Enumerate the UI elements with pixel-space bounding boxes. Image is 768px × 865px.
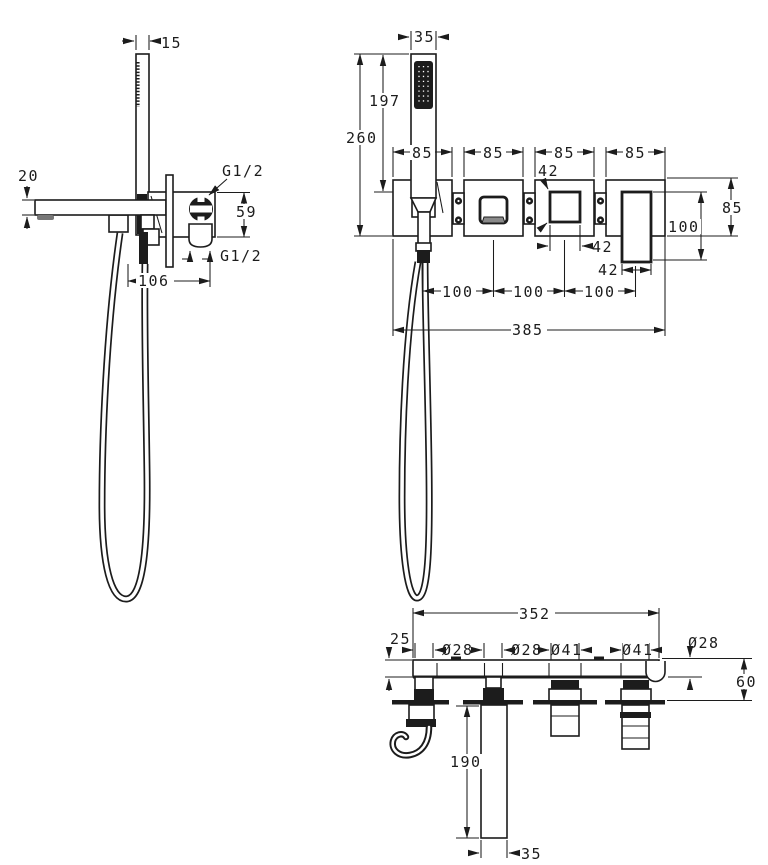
dim-knob-width: 42: [592, 238, 613, 256]
front-view: 35 197 260 85 85 85 85 42: [344, 28, 744, 598]
dim-pitch3: 100: [584, 283, 616, 301]
dim-spout-width: 35: [521, 845, 542, 863]
dim-pitch2: 100: [513, 283, 545, 301]
shower-hook: [409, 705, 434, 720]
dim-lever-height: 100: [668, 218, 700, 236]
technical-drawing-page: 15 20 G1/2 59 G1/2 106: [0, 0, 768, 865]
flange-2: [463, 700, 523, 705]
dim-overall-height: 260: [346, 129, 378, 147]
lever-handle: [622, 192, 651, 262]
dim-handset-width: 35: [414, 28, 435, 46]
dim-lever-width: 42: [598, 261, 619, 279]
spout-aerator: [37, 215, 54, 220]
dim-bottom-connection: G1/2: [220, 247, 262, 265]
bottom-view: 352 25 Ø28 Ø28 Ø41 Ø41: [385, 605, 758, 863]
hose-outlet: [109, 215, 128, 232]
dim-dia-valve1: Ø41: [551, 641, 583, 659]
dim-wall-distance: 60: [736, 673, 757, 691]
dim-pitch1: 100: [442, 283, 474, 301]
dim-handset-height: 197: [369, 92, 401, 110]
dim-plate1-width: 85: [412, 144, 433, 162]
holder-socket: [646, 661, 665, 682]
dim-plate4-width: 85: [625, 144, 646, 162]
dim-dia-valve2: Ø41: [622, 641, 654, 659]
dim-dia-socket: Ø28: [688, 634, 720, 652]
dim-knob-size: 42: [538, 162, 559, 180]
flange-4: [605, 700, 665, 705]
dim-spout-depth: 106: [138, 272, 170, 290]
spray-face: [414, 61, 433, 109]
flange-1: [392, 700, 449, 705]
dim-body-width: 352: [519, 605, 551, 623]
dim-overall-width: 385: [512, 321, 544, 339]
mixer-body-plan: [413, 660, 659, 677]
dim-top-connection: G1/2: [222, 162, 264, 180]
dim-plate2-width: 85: [483, 144, 504, 162]
spout-side: [35, 200, 166, 215]
dim-dia-spout: Ø28: [511, 641, 543, 659]
hose-connector-side: [139, 232, 148, 264]
dim-valve-height: 59: [236, 203, 257, 221]
spout-plan: [481, 705, 507, 838]
dim-spout-length: 190: [450, 753, 482, 771]
dim-dia-holder: Ø28: [442, 641, 474, 659]
dim-plate-height: 85: [722, 199, 743, 217]
valve-port: [189, 224, 212, 247]
dim-spout-height: 20: [18, 167, 39, 185]
dim-plate3-width: 85: [554, 144, 575, 162]
side-view: 15 20 G1/2 59 G1/2 106: [18, 34, 264, 599]
flange-3: [533, 700, 597, 705]
wall-plate-side: [166, 175, 173, 267]
dim-body-thickness: 25: [390, 630, 411, 648]
mixer-drawing-svg: 15 20 G1/2 59 G1/2 106: [0, 0, 768, 865]
square-knob: [550, 192, 580, 222]
dim-handset-thickness: 15: [161, 34, 182, 52]
